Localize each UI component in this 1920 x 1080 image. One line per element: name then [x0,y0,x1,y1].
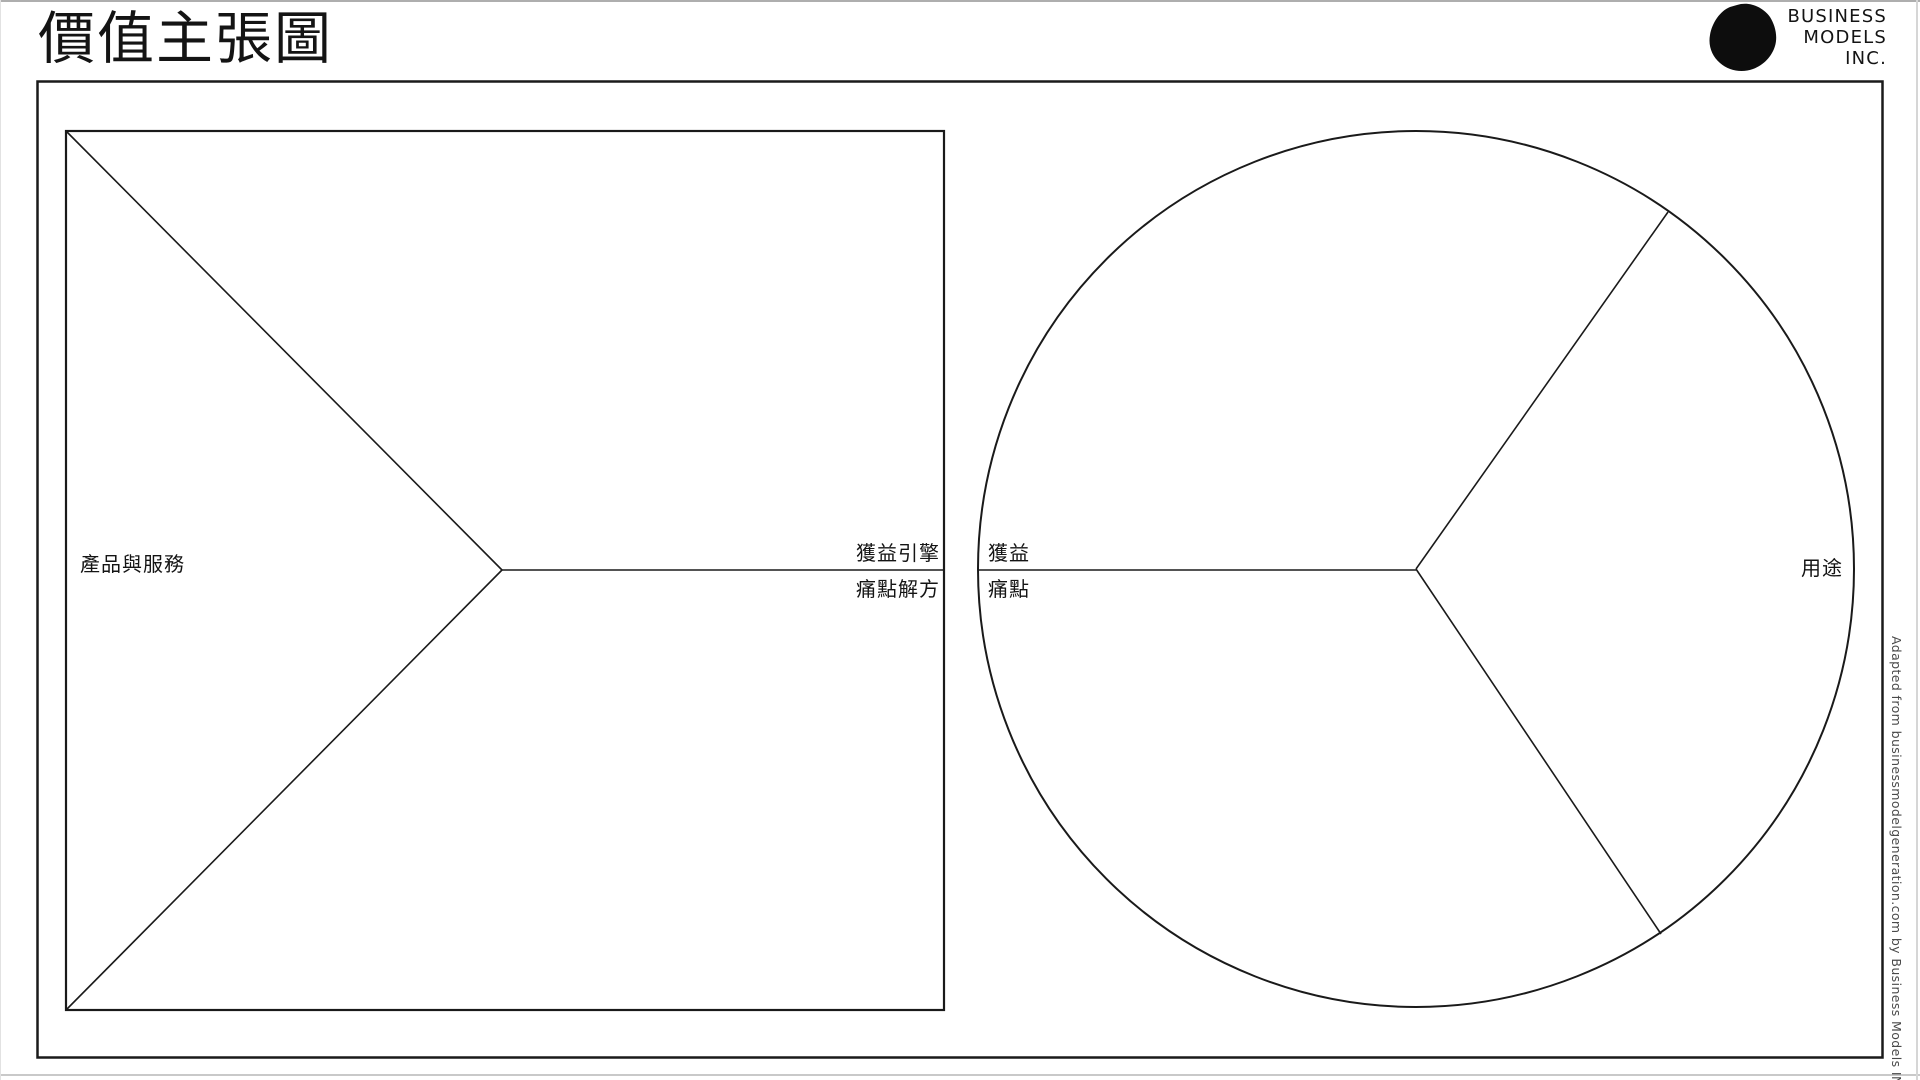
value-map-diagonal-top [67,132,502,570]
canvas-shapes [0,0,1920,1080]
attribution-text: Adapted from businessmodelgeneration.com… [1889,636,1904,1080]
profile-lower-divider [1416,569,1661,934]
gains-label: 獲益 [988,541,1030,565]
gain-creators-label: 獲益引擎 [700,541,940,565]
profile-upper-divider [1416,212,1668,569]
value-map-diagonal-bottom [67,570,502,1009]
products-services-label: 產品與服務 [80,552,185,576]
pain-relievers-label: 痛點解方 [700,577,940,601]
value-proposition-canvas-page: 價值主張圖 BUSINESS MODELS INC. 產品與服務 獲益引擎 痛點… [0,0,1920,1080]
pains-label: 痛點 [988,577,1030,601]
jobs-label: 用途 [1603,556,1843,580]
